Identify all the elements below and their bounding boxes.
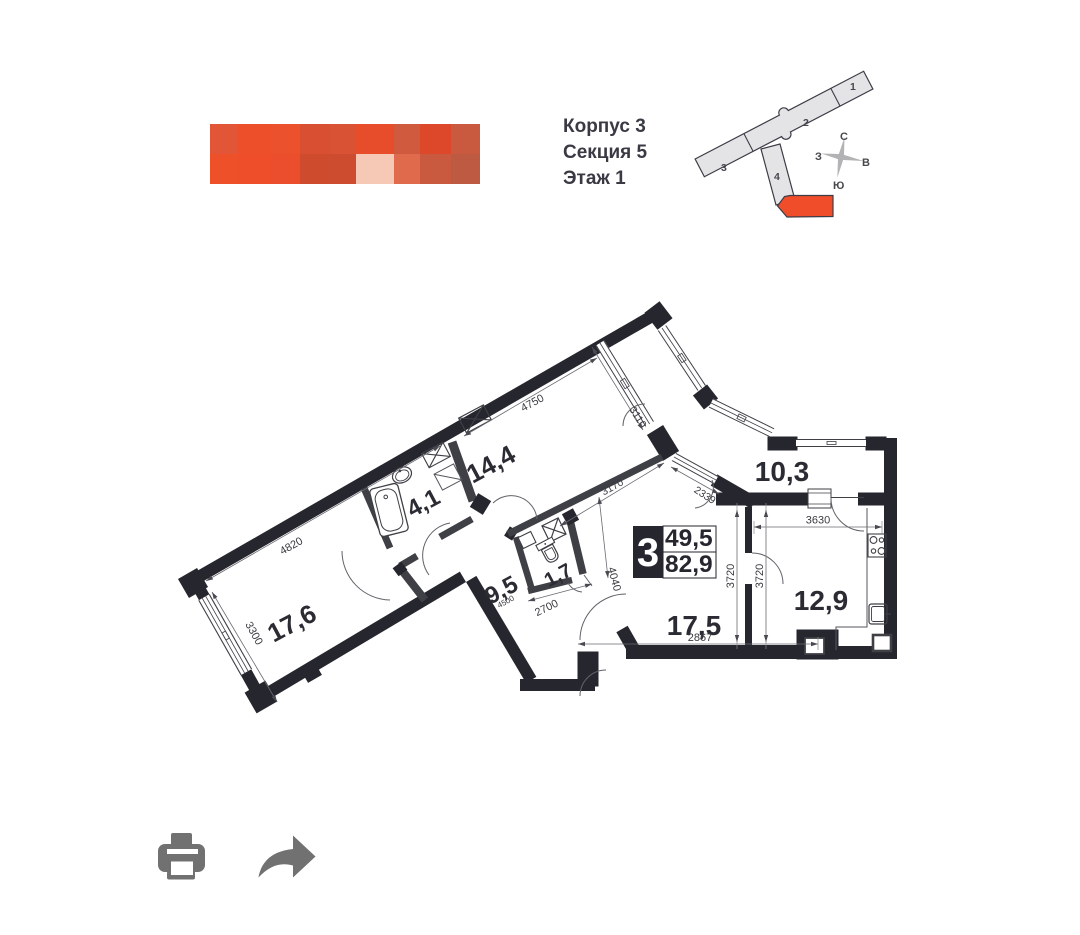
svg-text:В: В [862,157,870,169]
svg-text:Этаж 1: Этаж 1 [563,168,626,189]
svg-text:Корпус 3: Корпус 3 [563,116,646,137]
svg-text:3720: 3720 [725,564,737,588]
svg-text:З: З [815,151,822,163]
svg-text:3: 3 [721,162,727,174]
svg-text:10,3: 10,3 [755,456,810,487]
svg-text:1: 1 [850,81,856,93]
svg-text:3: 3 [637,531,659,575]
svg-text:Секция 5: Секция 5 [563,142,648,163]
svg-text:2867: 2867 [688,632,712,644]
svg-text:3720: 3720 [754,564,766,588]
svg-text:2: 2 [803,117,809,129]
svg-text:3630: 3630 [806,515,830,527]
svg-text:12,9: 12,9 [794,585,849,616]
svg-text:Ю: Ю [833,180,844,192]
svg-text:4: 4 [774,171,780,183]
svg-text:С: С [840,131,848,143]
svg-text:82,9: 82,9 [665,551,713,578]
svg-text:49,5: 49,5 [665,525,713,552]
